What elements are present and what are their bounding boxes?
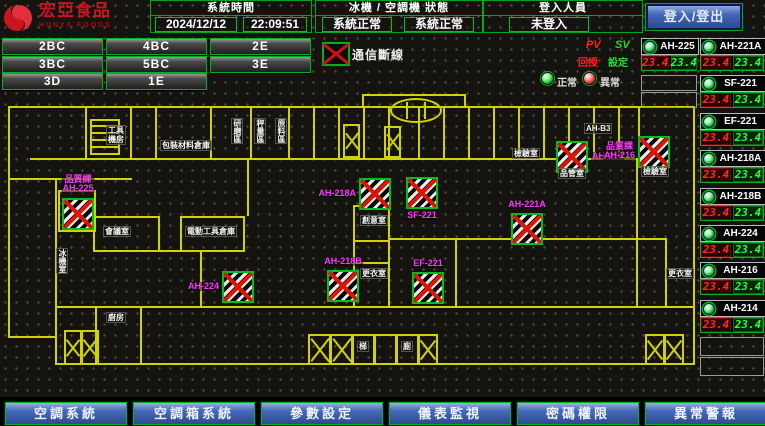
device-led-icon xyxy=(703,78,715,90)
device-pv-value: 23.4 xyxy=(701,318,733,332)
panel-empty-cell xyxy=(641,75,697,91)
wall-segment xyxy=(636,158,638,308)
wall-segment xyxy=(155,106,157,158)
wall-segment xyxy=(443,106,445,158)
device-pv-value: 23.4 xyxy=(701,168,733,182)
stairs-icon xyxy=(418,334,438,365)
stairs-icon xyxy=(343,124,360,158)
device-row-ah-218b[interactable]: AH-218B xyxy=(700,188,765,205)
device-led-icon xyxy=(703,303,715,315)
wall-segment xyxy=(455,240,457,308)
room-label: AH-B3 xyxy=(584,123,612,134)
device-values-ah-214: 23.423.4 xyxy=(700,317,764,333)
wall-segment xyxy=(93,216,160,218)
device-sv-value: 23.4 xyxy=(733,56,763,70)
room-label: 創意室 xyxy=(360,215,388,226)
device-values-ah-225: 23.423.4 xyxy=(641,55,697,71)
ahu-unit-label-ef-221: EF-221 xyxy=(412,259,444,268)
ahu-unit-icon-ef-221[interactable] xyxy=(412,272,444,304)
device-name-label: AH-221A xyxy=(717,41,764,52)
panel-empty-cell xyxy=(641,92,697,108)
ahu-unit-label-ah-225: 品質課 AH-225 xyxy=(61,175,94,193)
ahu-unit-icon-ah-218b[interactable] xyxy=(327,270,359,302)
device-row-ef-221[interactable]: EF-221 xyxy=(700,113,765,130)
nav-button-6[interactable]: 異常警報 xyxy=(645,402,765,425)
stairs-icon xyxy=(308,334,331,365)
room-label: 電動工具倉庫 xyxy=(185,226,237,237)
nav-button-4[interactable]: 儀表監視 xyxy=(389,402,511,425)
wall-segment xyxy=(313,106,315,158)
wall-segment xyxy=(158,216,160,252)
device-name-label: AH-225 xyxy=(658,41,697,52)
wall-segment xyxy=(58,230,96,232)
device-values-sf-221: 23.423.4 xyxy=(700,92,764,108)
device-name-label: EF-221 xyxy=(717,116,764,127)
device-row-ah-225[interactable]: AH-225 xyxy=(641,38,699,55)
wall-segment xyxy=(85,106,87,158)
stairs-icon xyxy=(664,334,684,365)
device-values-ah-216: 23.423.4 xyxy=(700,279,764,295)
wall-segment xyxy=(543,106,545,158)
device-led-icon xyxy=(644,41,656,53)
device-row-ah-214[interactable]: AH-214 xyxy=(700,300,765,317)
wall-segment xyxy=(338,106,340,158)
wall-segment xyxy=(363,106,365,158)
wall-segment xyxy=(362,94,466,96)
wall-segment xyxy=(93,250,245,252)
device-pv-value: 23.4 xyxy=(701,280,733,294)
stairs-icon xyxy=(81,330,99,365)
panel-empty-cell xyxy=(700,337,764,356)
wall-segment xyxy=(388,205,390,308)
device-led-icon xyxy=(703,191,715,203)
device-pv-value: 23.4 xyxy=(642,56,671,70)
device-pv-value: 23.4 xyxy=(701,206,733,220)
nav-button-3[interactable]: 參數設定 xyxy=(261,402,383,425)
room-label: 更衣室 xyxy=(360,268,388,279)
ahu-unit-label-ah-216: 品質課 AH-216 xyxy=(603,142,636,160)
bottom-nav-bar: 空調系統空調箱系統參數設定儀表監視密碼權限異常警報 xyxy=(0,397,765,426)
device-sv-value: 23.4 xyxy=(733,168,763,182)
ahu-unit-label-ah-224: AH-224 xyxy=(187,282,220,291)
device-name-label: AH-216 xyxy=(717,265,764,276)
ahu-unit-icon-sf-221[interactable] xyxy=(406,177,438,209)
wall-segment xyxy=(58,190,60,232)
wall-segment xyxy=(288,106,290,158)
hmi-screen: 宏亞食品 HUNYA FOODS 系統時間 2024/12/12 22:09:5… xyxy=(0,0,765,426)
device-pv-value: 23.4 xyxy=(701,131,733,145)
device-values-ah-224: 23.423.4 xyxy=(700,242,764,258)
device-name-label: AH-218A xyxy=(717,153,764,164)
wall-segment xyxy=(130,106,132,158)
room-label: 包裝材料倉庫 xyxy=(160,140,212,151)
stairwell-icon xyxy=(390,98,442,123)
stairs-icon xyxy=(330,334,353,365)
room-label: 工具 機房 xyxy=(106,125,126,145)
room-label: 梯 xyxy=(357,341,369,352)
device-sv-value: 23.4 xyxy=(733,93,763,107)
wall-segment xyxy=(250,106,252,158)
device-pv-value: 23.4 xyxy=(701,56,733,70)
ahu-unit-icon-ah-225[interactable] xyxy=(62,198,94,230)
panel-empty-cell xyxy=(700,357,764,376)
wall-segment xyxy=(140,306,142,363)
wall-segment xyxy=(55,306,695,308)
device-led-icon xyxy=(703,41,715,53)
ahu-unit-label-sf-221: SF-221 xyxy=(406,211,438,220)
wall-segment xyxy=(390,238,457,240)
device-led-icon xyxy=(703,116,715,128)
device-name-label: AH-214 xyxy=(717,303,764,314)
device-sv-value: 23.4 xyxy=(733,280,763,294)
device-row-ah-221a[interactable]: AH-221A xyxy=(700,38,765,55)
room-label: 秤量區 xyxy=(254,118,266,144)
room-label: 更衣室 xyxy=(666,268,694,279)
room-label: 研磨區 xyxy=(231,118,243,144)
ahu-unit-label-ah-218a: AH-218A xyxy=(317,189,357,198)
nav-button-1[interactable]: 空調系統 xyxy=(5,402,127,425)
nav-button-2[interactable]: 空調箱系統 xyxy=(133,402,255,425)
ahu-unit-icon-ah-218a[interactable] xyxy=(359,178,391,210)
device-sv-value: 23.4 xyxy=(733,243,763,257)
ahu-unit-icon-ah-216[interactable] xyxy=(638,136,670,168)
device-name-label: SF-221 xyxy=(717,78,764,89)
stairs-icon xyxy=(64,330,82,365)
room-label: 會議室 xyxy=(103,226,131,237)
room-label: 原料區 xyxy=(275,118,287,144)
device-sv-value: 23.4 xyxy=(733,131,763,145)
device-sv-value: 23.4 xyxy=(671,56,698,70)
room-label: 冰機室 xyxy=(56,248,68,274)
room-label: 檢驗室 xyxy=(512,148,540,159)
wall-segment xyxy=(362,94,364,106)
wall-segment xyxy=(464,94,466,106)
device-led-icon xyxy=(703,265,715,277)
wall-segment xyxy=(8,336,57,338)
wall-segment xyxy=(180,216,245,218)
wall-segment xyxy=(493,106,495,158)
device-values-ah-221a: 23.423.4 xyxy=(700,55,764,71)
device-row-ah-224[interactable]: AH-224 xyxy=(700,225,765,242)
device-led-icon xyxy=(703,228,715,240)
device-values-ah-218b: 23.423.4 xyxy=(700,205,764,221)
room-label: 廚房 xyxy=(106,312,126,323)
device-pv-value: 23.4 xyxy=(701,243,733,257)
device-led-icon xyxy=(703,153,715,165)
wall-segment xyxy=(8,106,10,338)
room-box xyxy=(374,334,397,365)
wall-segment xyxy=(30,158,640,160)
stairs-icon xyxy=(384,126,401,158)
device-name-label: AH-224 xyxy=(717,228,764,239)
wall-segment xyxy=(180,216,182,252)
device-row-sf-221[interactable]: SF-221 xyxy=(700,75,765,92)
ahu-unit-icon-ah-224[interactable] xyxy=(222,271,254,303)
nav-button-5[interactable]: 密碼權限 xyxy=(517,402,639,425)
wall-segment xyxy=(468,106,470,158)
room-label: 廁 xyxy=(401,341,413,352)
room-label: 檢驗室 xyxy=(641,166,669,177)
device-pv-value: 23.4 xyxy=(701,93,733,107)
wall-segment xyxy=(243,216,245,252)
wall-segment xyxy=(693,106,695,365)
ahu-unit-label-ah-218b: AH-218B xyxy=(323,257,363,266)
wall-segment xyxy=(8,106,640,108)
device-values-ef-221: 23.423.4 xyxy=(700,130,764,146)
device-row-ah-218a[interactable]: AH-218A xyxy=(700,150,765,167)
device-row-ah-216[interactable]: AH-216 xyxy=(700,262,765,279)
wall-segment xyxy=(247,158,249,216)
device-sv-value: 23.4 xyxy=(733,206,763,220)
ahu-unit-icon-ah-221a[interactable] xyxy=(511,213,543,245)
device-sv-value: 23.4 xyxy=(733,318,763,332)
device-values-ah-218a: 23.423.4 xyxy=(700,167,764,183)
wall-segment xyxy=(200,252,202,308)
room-label: 品管室 xyxy=(558,168,586,179)
stairs-icon xyxy=(645,334,665,365)
device-name-label: AH-218B xyxy=(717,191,764,202)
wall-segment xyxy=(353,240,390,242)
ahu-unit-label-ah-221a: AH-221A xyxy=(507,200,547,209)
